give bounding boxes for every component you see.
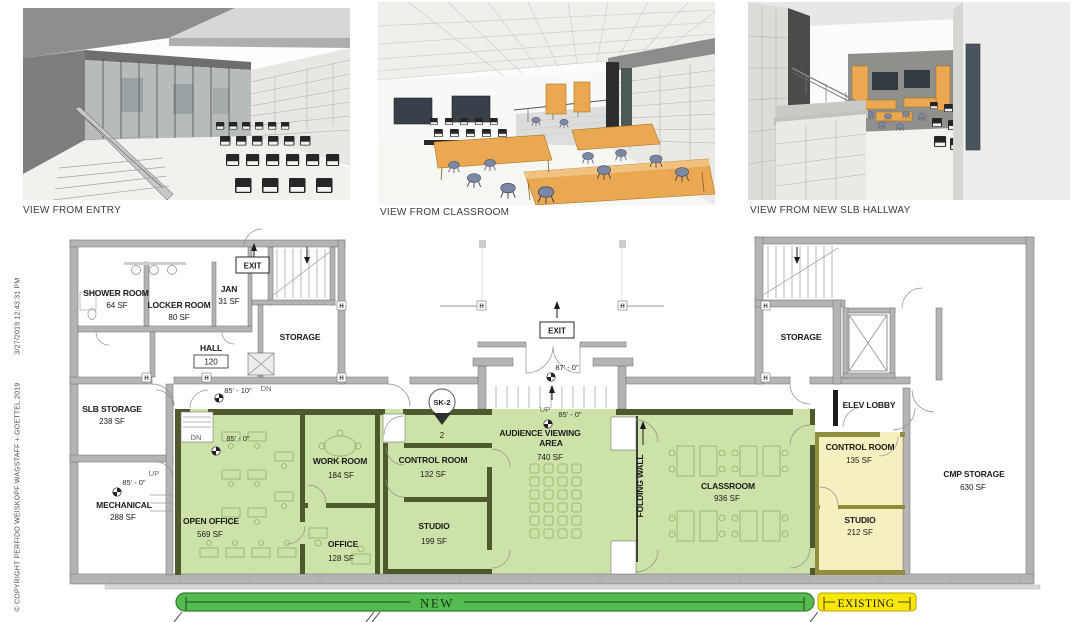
room-area-control-new: 132 SF <box>420 470 446 479</box>
legend-existing-label: EXISTING <box>837 598 894 610</box>
room-label-control-new: CONTROL ROOM <box>399 455 468 465</box>
h-marker-label: H <box>339 376 343 382</box>
sk2-number: 2 <box>440 431 445 440</box>
room-area-jan: 31 SF <box>218 297 239 306</box>
legend-new-label: NEW <box>420 596 454 611</box>
h-markers <box>142 301 770 382</box>
folding-wall-label: FOLDING WALL <box>635 455 645 518</box>
room-number-hall: 120 <box>204 358 218 367</box>
room-area-studio-new: 199 SF <box>421 537 447 546</box>
room-label-audience-2: AREA <box>539 438 563 448</box>
room-area-audience: 740 SF <box>537 453 563 462</box>
room-label-studio-existing: STUDIO <box>844 515 876 525</box>
room-label-storage-left: STORAGE <box>280 332 321 342</box>
room-label-studio-new: STUDIO <box>418 521 450 531</box>
exit-label-center: EXIT <box>548 327 566 336</box>
elev-lobby-accent-wall <box>833 390 838 426</box>
room-label-cmp-storage: CMP STORAGE <box>943 469 1005 479</box>
drawing-sheet: VIEW FROM ENTRY <box>0 0 1072 622</box>
room-area-open-office: 569 SF <box>197 530 223 539</box>
dim-87-0: 87' - 0" <box>555 363 579 372</box>
room-area-classroom: 936 SF <box>714 494 740 503</box>
room-label-audience-1: AUDIENCE VIEWING <box>499 428 581 438</box>
h-marker-label: H <box>479 304 483 310</box>
h-marker-label: H <box>763 376 767 382</box>
up-arrow-center <box>549 385 555 400</box>
room-label-work-room: WORK ROOM <box>313 456 367 466</box>
room-label-office: OFFICE <box>328 539 359 549</box>
room-label-shower: SHOWER ROOM <box>83 288 148 298</box>
rendering-classroom <box>378 2 715 205</box>
room-label-classroom: CLASSROOM <box>701 481 755 491</box>
rendering-classroom-caption: VIEW FROM CLASSROOM <box>380 207 509 218</box>
room-area-slb-storage: 238 SF <box>99 417 125 426</box>
existing-zone <box>815 432 905 575</box>
dim-85-0-left: 85' - 0" <box>122 478 146 487</box>
room-label-jan: JAN <box>221 284 238 294</box>
rendering-classroom-image <box>378 2 715 205</box>
room-area-locker: 80 SF <box>168 313 189 322</box>
h-marker-label: H <box>204 376 208 382</box>
room-area-cmp-storage: 630 SF <box>960 483 986 492</box>
up-label-center: UP <box>540 405 550 414</box>
rendering-hallway-image <box>748 2 1070 200</box>
stair-down-arrow-right <box>794 247 800 264</box>
rendering-entry <box>23 8 350 200</box>
new-zone <box>175 409 815 575</box>
h-marker-label: H <box>620 304 624 310</box>
up-label-left: UP <box>149 469 159 478</box>
floor-plan: SHOWER ROOM 64 SF LOCKER ROOM 80 SF JAN … <box>0 228 1072 622</box>
room-area-office: 128 SF <box>328 554 354 563</box>
sk2-label: SK-2 <box>433 398 450 407</box>
room-area-studio-existing: 212 SF <box>847 528 873 537</box>
h-marker-label: H <box>339 304 343 310</box>
room-area-control-existing: 135 SF <box>846 456 872 465</box>
room-label-open-office: OPEN OFFICE <box>183 516 239 526</box>
room-label-locker: LOCKER ROOM <box>147 300 210 310</box>
room-area-shower: 64 SF <box>106 301 127 310</box>
dimension-slashes <box>174 612 818 622</box>
room-label-mechanical: MECHANICAL <box>96 500 152 510</box>
exit-arrow-center <box>554 301 560 318</box>
h-marker-label: H <box>763 304 767 310</box>
rendering-entry-image <box>23 8 350 200</box>
dim-85-10: 85' - 10" <box>224 386 252 395</box>
room-area-work-room: 184 SF <box>328 471 354 480</box>
legend: NEW EXISTING <box>174 593 916 622</box>
room-label-elev-lobby: ELEV LOBBY <box>843 400 896 410</box>
h-marker-label: H <box>144 376 148 382</box>
room-label-storage-right: STORAGE <box>781 332 822 342</box>
room-label-hall: HALL <box>200 343 222 353</box>
dim-85-0-center: 85' - 0" <box>558 410 582 419</box>
exit-label-left: EXIT <box>244 262 262 271</box>
rendering-hallway-caption: VIEW FROM NEW SLB HALLWAY <box>750 205 911 216</box>
room-label-control-existing: CONTROL ROOM <box>826 442 895 452</box>
room-label-slb-storage: SLB STORAGE <box>82 404 142 414</box>
room-area-mechanical: 288 SF <box>110 513 136 522</box>
dim-85-0-office: 85' - 0" <box>226 434 250 443</box>
rendering-hallway <box>748 2 1070 200</box>
dn-label-corridor: DN <box>261 384 272 393</box>
rendering-entry-caption: VIEW FROM ENTRY <box>23 205 121 216</box>
dn-label-notch: DN <box>191 433 202 442</box>
